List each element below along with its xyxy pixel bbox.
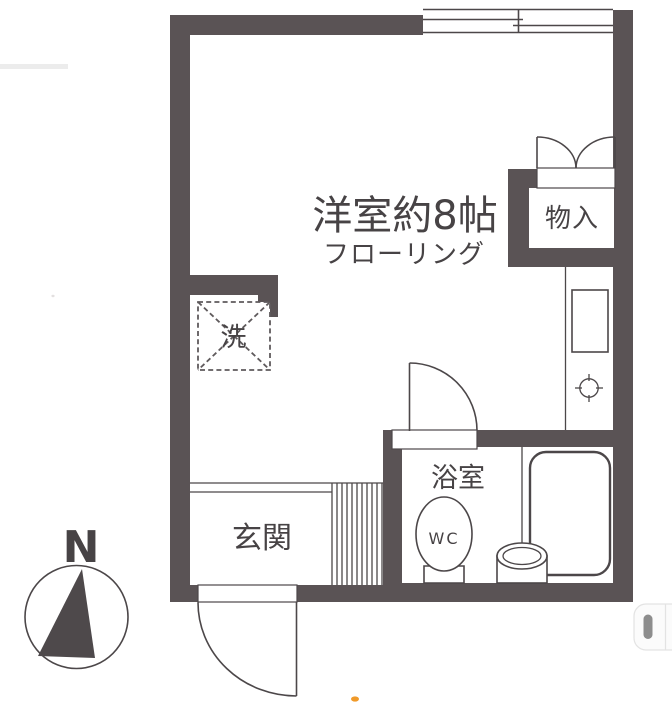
bathroom-label: 浴室 xyxy=(431,463,485,494)
entrance-label: 玄関 xyxy=(232,521,292,556)
carousel-handle[interactable] xyxy=(634,604,672,650)
main-room-label: 洋室約8帖 xyxy=(312,193,497,239)
wall-right xyxy=(613,10,633,602)
wall-washer-nook-top xyxy=(190,275,278,295)
bathroom-door xyxy=(392,363,477,449)
entrance-step-lines xyxy=(190,483,383,492)
scan-artifact-dot xyxy=(51,295,54,297)
scan-artifact-line xyxy=(0,64,68,69)
utility-strip xyxy=(566,267,609,430)
wall-bathroom-left xyxy=(383,430,402,601)
wall-left xyxy=(170,15,190,602)
kitchen-sink xyxy=(572,290,608,352)
burner-icon xyxy=(575,374,603,402)
scan-artifact-orange-dot xyxy=(351,696,359,701)
closet xyxy=(508,137,633,267)
main-room-sublabel: フローリング xyxy=(323,240,485,270)
closet-double-doors-icon xyxy=(537,137,615,168)
carousel-handle-bar[interactable] xyxy=(644,615,653,640)
washer-label: 洗 xyxy=(220,323,247,353)
window-sliding xyxy=(423,9,613,33)
closet-label: 物入 xyxy=(545,204,599,234)
entrance-stripe-area xyxy=(332,483,382,585)
entry-door xyxy=(198,585,297,696)
compass-icon xyxy=(25,566,128,669)
floor-plan: 洗 物入 xyxy=(0,0,672,712)
washbasin xyxy=(497,543,547,583)
wall-bathroom-bottom xyxy=(383,583,633,602)
wall-top xyxy=(170,15,423,35)
compass-north-label: N xyxy=(63,522,100,573)
toilet-label: WC xyxy=(429,529,460,548)
